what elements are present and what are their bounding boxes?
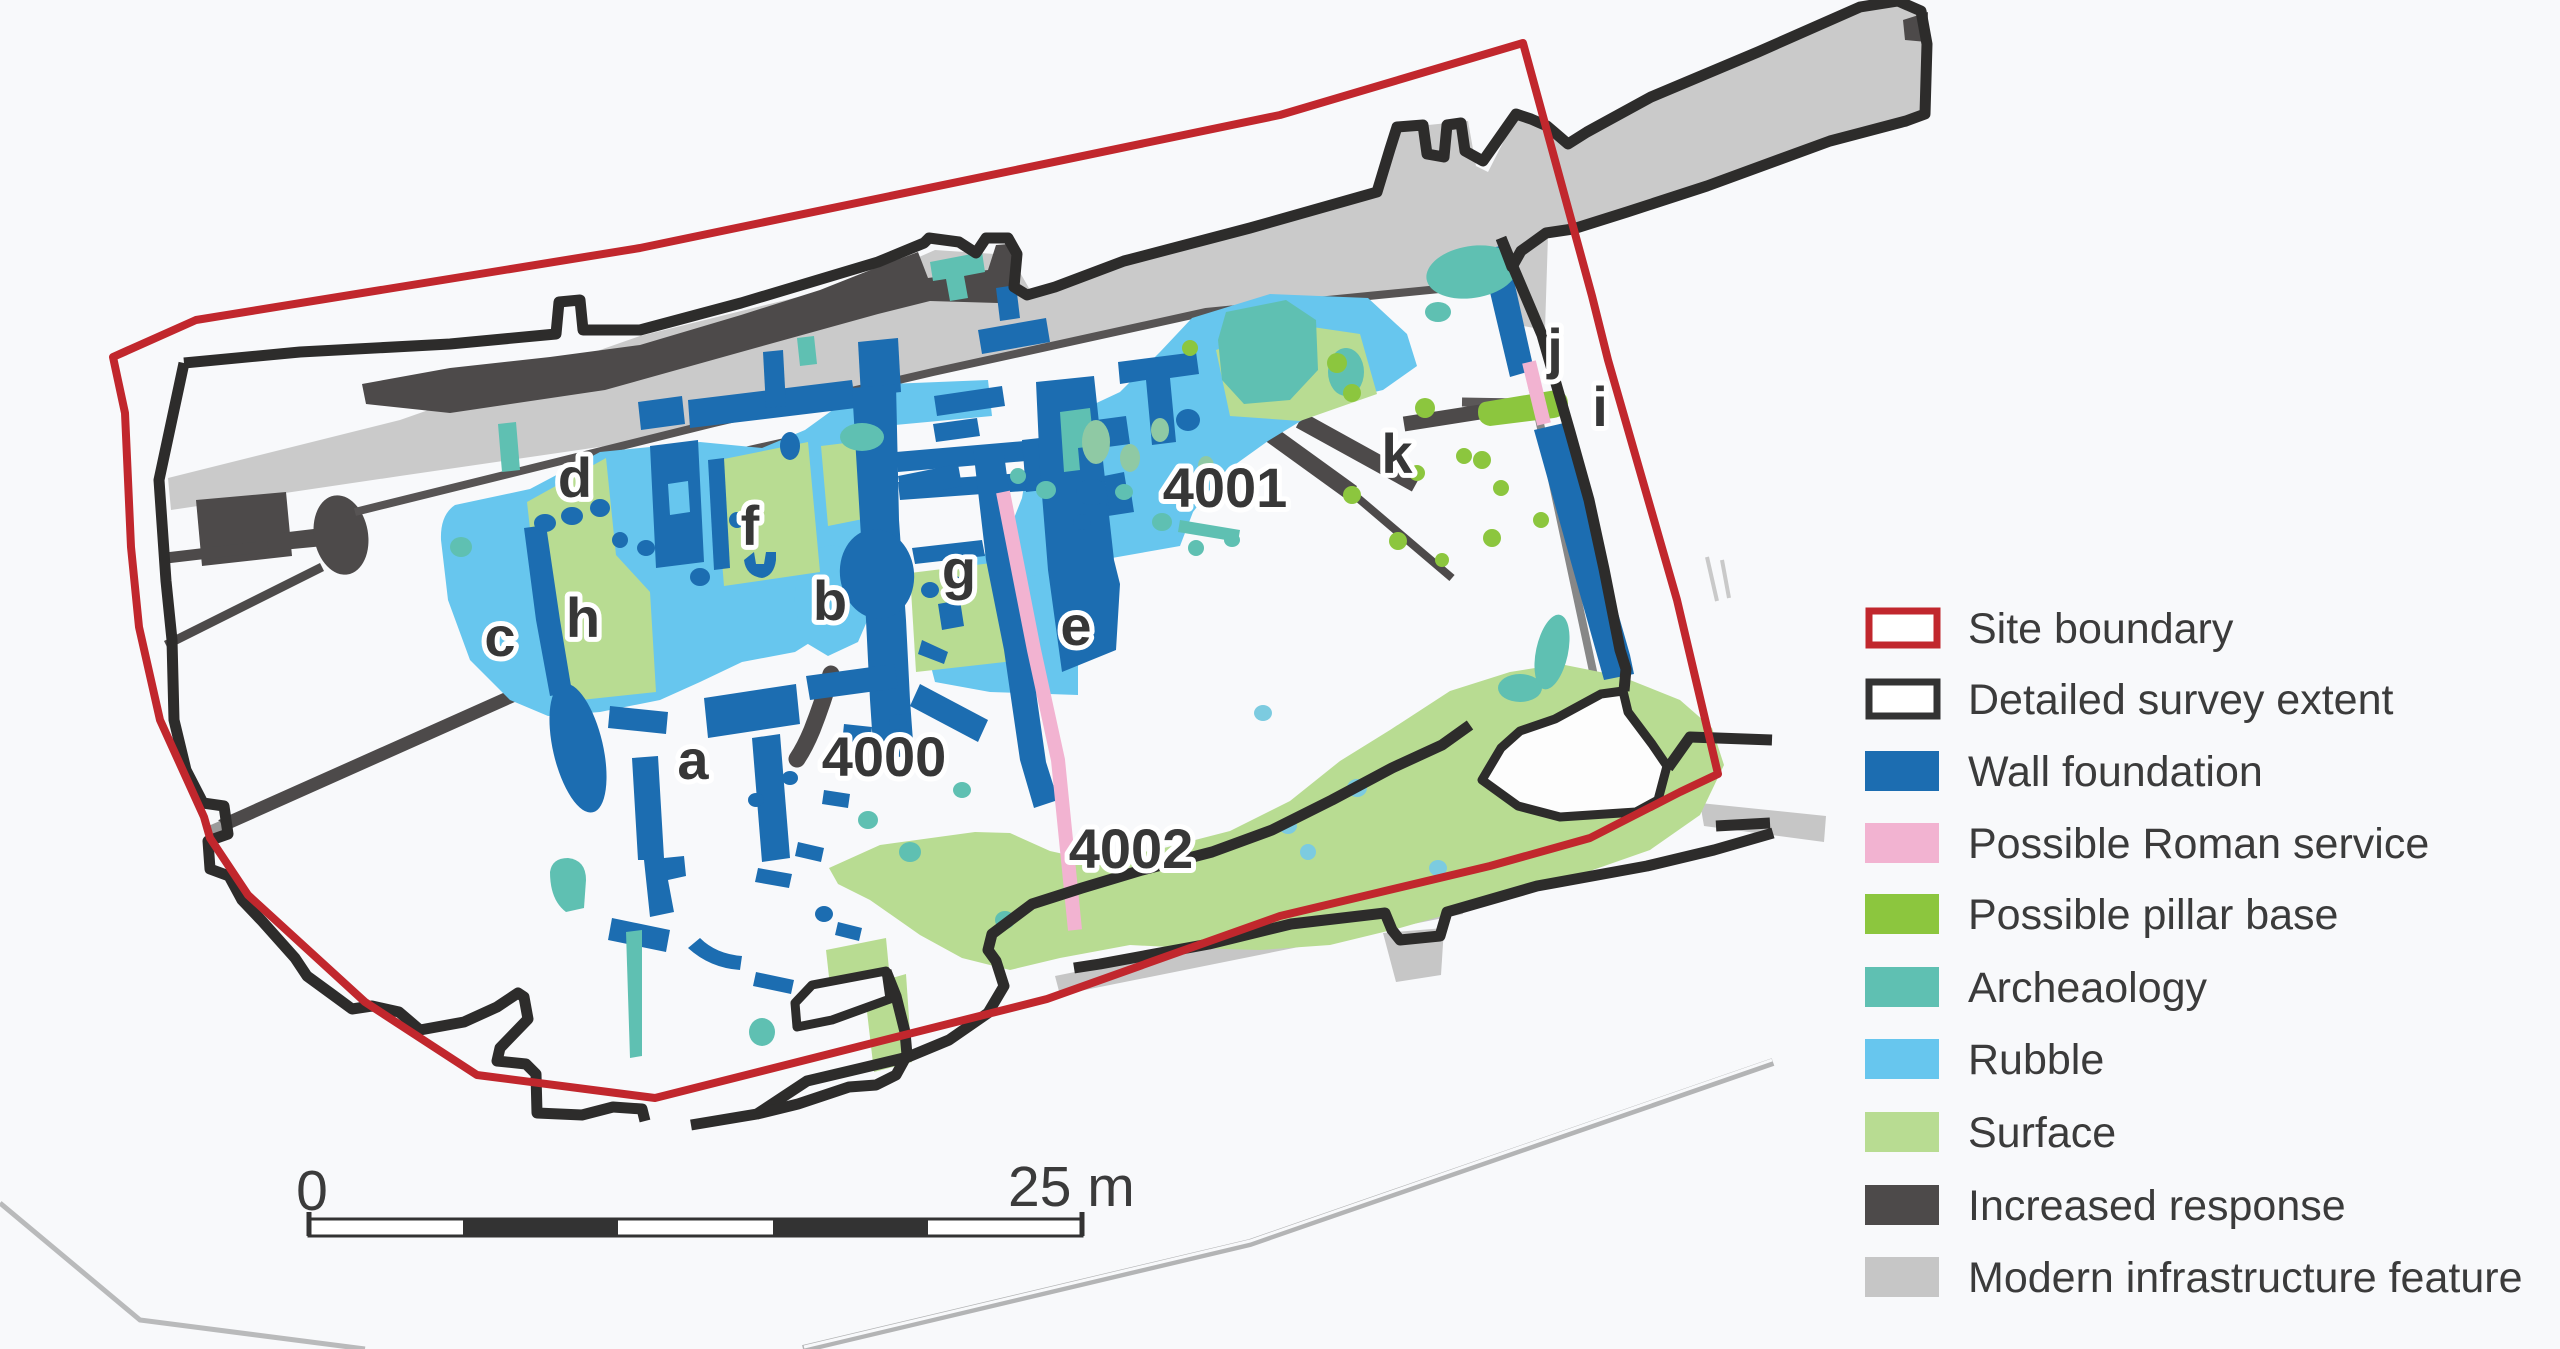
- svg-text:Modern infrastructure feature: Modern infrastructure feature: [1968, 1254, 2523, 1302]
- svg-text:Increased response: Increased response: [1968, 1182, 2346, 1230]
- svg-text:0: 0: [296, 1159, 328, 1223]
- svg-text:4001: 4001: [1163, 456, 1288, 519]
- svg-text:Possible pillar base: Possible pillar base: [1968, 891, 2338, 939]
- svg-text:d: d: [558, 446, 592, 509]
- svg-text:Rubble: Rubble: [1968, 1036, 2104, 1084]
- svg-text:f: f: [741, 494, 760, 557]
- svg-text:Possible Roman service: Possible Roman service: [1968, 820, 2429, 868]
- svg-text:Detailed survey extent: Detailed survey extent: [1968, 676, 2393, 724]
- svg-text:i: i: [1592, 375, 1608, 438]
- svg-text:c: c: [484, 605, 515, 668]
- svg-text:a: a: [677, 728, 709, 791]
- svg-text:25 m: 25 m: [1008, 1155, 1135, 1219]
- svg-text:k: k: [1381, 422, 1413, 485]
- svg-text:Surface: Surface: [1968, 1109, 2116, 1157]
- svg-text:g: g: [942, 538, 976, 601]
- svg-text:e: e: [1060, 594, 1091, 657]
- svg-text:4000: 4000: [822, 725, 947, 788]
- svg-text:Archeaology: Archeaology: [1968, 964, 2208, 1012]
- svg-text:j: j: [1546, 317, 1563, 380]
- svg-text:4002: 4002: [1069, 817, 1194, 880]
- svg-text:h: h: [566, 586, 600, 649]
- svg-text:Site boundary: Site boundary: [1968, 605, 2234, 653]
- svg-text:Wall foundation: Wall foundation: [1968, 748, 2263, 796]
- svg-text:b: b: [813, 569, 847, 632]
